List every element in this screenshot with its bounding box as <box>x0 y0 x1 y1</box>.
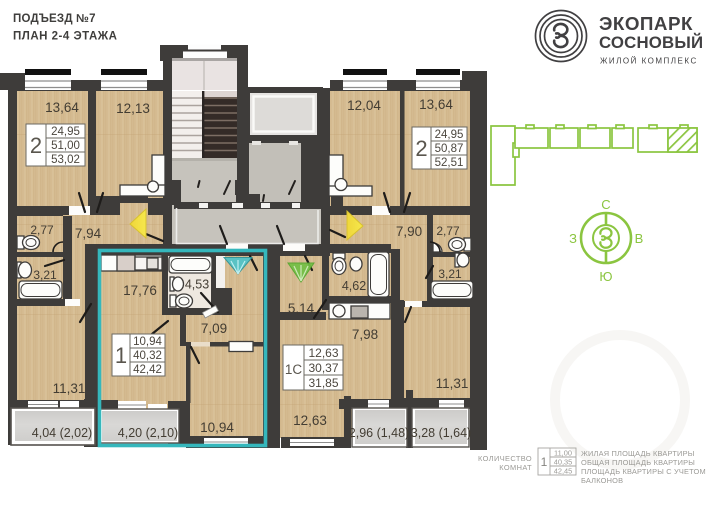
svg-text:7,90: 7,90 <box>396 224 422 239</box>
svg-text:ЖИЛАЯ ПЛОЩАДЬ КВАРТИРЫ: ЖИЛАЯ ПЛОЩАДЬ КВАРТИРЫ <box>581 449 694 458</box>
svg-text:КОМНАТ: КОМНАТ <box>499 463 532 472</box>
svg-text:42,45: 42,45 <box>554 467 573 476</box>
svg-text:З: З <box>569 231 577 246</box>
svg-text:30,37: 30,37 <box>308 361 338 375</box>
svg-text:51,00: 51,00 <box>51 140 80 152</box>
svg-text:4,04 (2,02): 4,04 (2,02) <box>32 426 92 440</box>
svg-text:КОЛИЧЕСТВО: КОЛИЧЕСТВО <box>478 454 532 463</box>
svg-text:1С: 1С <box>285 362 303 377</box>
svg-text:5,14: 5,14 <box>288 301 315 316</box>
svg-text:4,62: 4,62 <box>342 279 366 293</box>
svg-text:11,00: 11,00 <box>554 449 572 458</box>
svg-text:7,98: 7,98 <box>352 327 378 342</box>
svg-text:7,94: 7,94 <box>75 226 102 241</box>
svg-text:31,85: 31,85 <box>308 376 338 390</box>
svg-text:ЭКОПАРК: ЭКОПАРК <box>599 13 693 34</box>
svg-text:11,31: 11,31 <box>436 376 469 391</box>
svg-text:С: С <box>601 197 610 212</box>
svg-text:В: В <box>635 231 644 246</box>
svg-text:17,76: 17,76 <box>123 283 157 298</box>
svg-text:ЖИЛОЙ КОМПЛЕКС: ЖИЛОЙ КОМПЛЕКС <box>600 57 698 66</box>
svg-text:2: 2 <box>30 133 42 158</box>
svg-text:53,02: 53,02 <box>51 154 80 166</box>
svg-text:2,96 (1,48): 2,96 (1,48) <box>349 426 409 440</box>
svg-text:10,94: 10,94 <box>200 420 234 435</box>
svg-text:БАЛКОНОВ: БАЛКОНОВ <box>581 476 623 485</box>
svg-text:7,09: 7,09 <box>201 321 227 336</box>
svg-text:3,21: 3,21 <box>33 268 57 282</box>
svg-text:1: 1 <box>115 343 127 368</box>
svg-text:52,51: 52,51 <box>435 157 464 169</box>
svg-text:50,87: 50,87 <box>435 143 464 155</box>
svg-text:3,28 (1,64): 3,28 (1,64) <box>411 426 471 440</box>
svg-text:1: 1 <box>541 455 548 469</box>
svg-text:ОБЩАЯ ПЛОЩАДЬ КВАРТИРЫ: ОБЩАЯ ПЛОЩАДЬ КВАРТИРЫ <box>581 458 695 467</box>
svg-text:4,20 (2,10): 4,20 (2,10) <box>118 426 178 440</box>
svg-text:ПЛАН 2-4 ЭТАЖА: ПЛАН 2-4 ЭТАЖА <box>13 31 117 43</box>
svg-text:ПЛОЩАДЬ КВАРТИРЫ С УЧЕТОМ: ПЛОЩАДЬ КВАРТИРЫ С УЧЕТОМ <box>581 467 706 476</box>
svg-text:12,13: 12,13 <box>116 101 150 116</box>
svg-text:10,94: 10,94 <box>133 336 162 348</box>
svg-text:40,35: 40,35 <box>554 458 573 467</box>
svg-text:42,42: 42,42 <box>133 364 162 376</box>
svg-text:2,77: 2,77 <box>30 223 54 237</box>
svg-text:24,95: 24,95 <box>435 129 464 141</box>
svg-text:12,63: 12,63 <box>308 346 338 360</box>
svg-text:13,64: 13,64 <box>419 97 453 112</box>
svg-text:13,64: 13,64 <box>45 100 79 115</box>
svg-text:Ю: Ю <box>599 269 612 284</box>
svg-text:40,32: 40,32 <box>133 350 162 362</box>
svg-text:4,53: 4,53 <box>185 278 209 292</box>
svg-text:12,04: 12,04 <box>347 98 381 113</box>
svg-text:24,95: 24,95 <box>51 126 80 138</box>
svg-text:3,21: 3,21 <box>438 267 462 281</box>
svg-text:СОСНОВЫЙ: СОСНОВЫЙ <box>599 33 703 52</box>
svg-text:ПОДЪЕЗД №7: ПОДЪЕЗД №7 <box>13 13 96 25</box>
svg-text:11,31: 11,31 <box>53 381 86 396</box>
svg-text:12,63: 12,63 <box>293 413 327 428</box>
svg-text:2: 2 <box>415 136 427 161</box>
svg-text:2,77: 2,77 <box>436 224 460 238</box>
